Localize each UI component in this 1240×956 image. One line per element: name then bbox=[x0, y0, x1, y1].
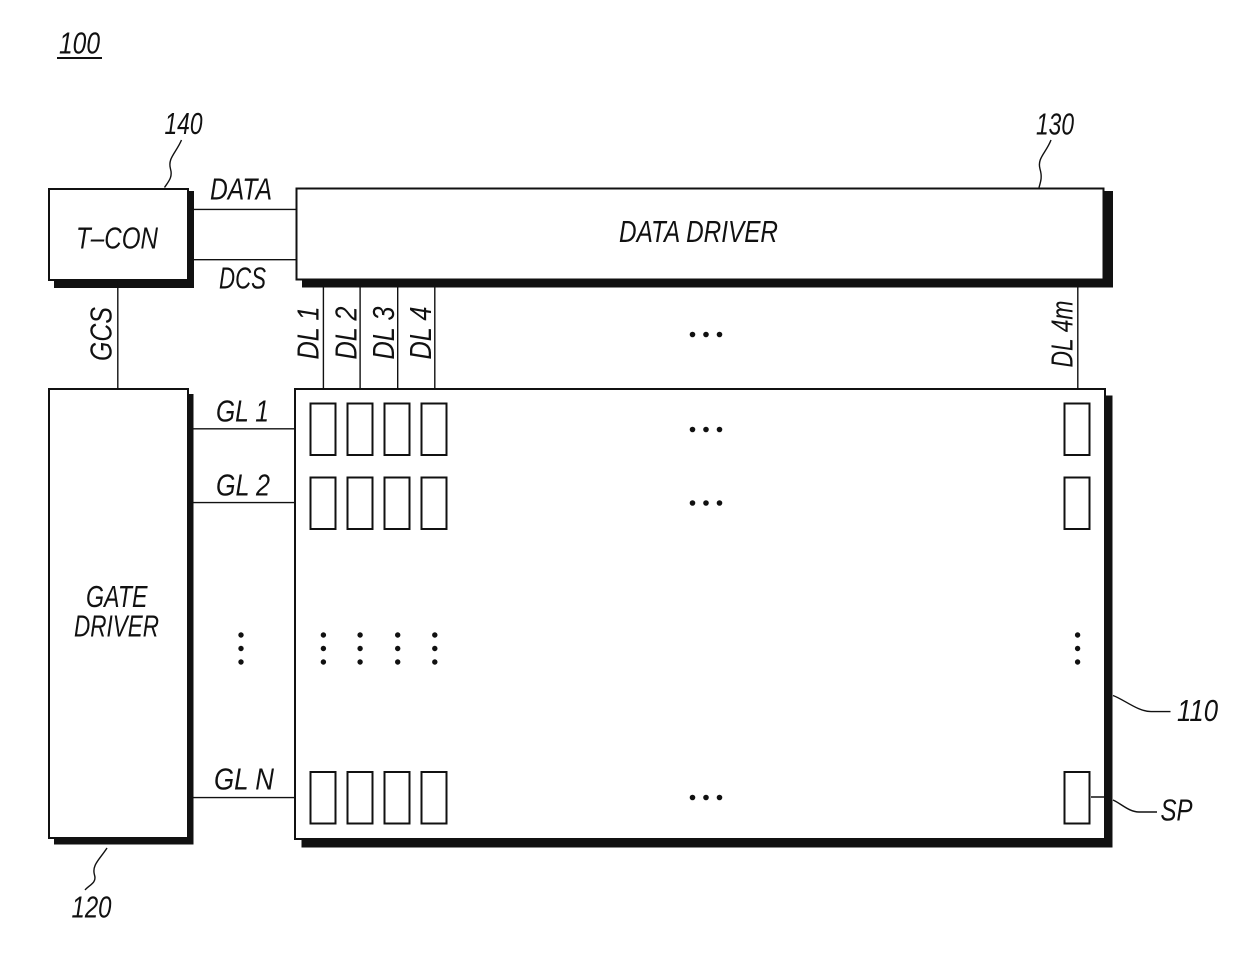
svg-text:110: 110 bbox=[1177, 693, 1218, 728]
svg-text:DATA DRIVER: DATA DRIVER bbox=[619, 214, 778, 249]
svg-text:DL 2: DL 2 bbox=[329, 307, 364, 360]
svg-text:T–CON: T–CON bbox=[76, 221, 158, 256]
svg-text:130: 130 bbox=[1036, 107, 1074, 142]
svg-text:DCS: DCS bbox=[219, 261, 266, 296]
svg-text:DL 3: DL 3 bbox=[366, 307, 401, 360]
svg-text:GL N: GL N bbox=[214, 762, 275, 797]
svg-text:120: 120 bbox=[72, 890, 112, 925]
svg-text:100: 100 bbox=[59, 26, 100, 61]
svg-text:DATA: DATA bbox=[210, 172, 272, 207]
svg-text:SP: SP bbox=[1161, 793, 1193, 828]
svg-text:GCS: GCS bbox=[84, 307, 119, 361]
svg-text:DL 4: DL 4 bbox=[403, 307, 438, 360]
svg-text:DL 1: DL 1 bbox=[291, 307, 326, 360]
svg-text:DRIVER: DRIVER bbox=[74, 609, 159, 644]
svg-text:GL 2: GL 2 bbox=[216, 468, 270, 503]
svg-text:140: 140 bbox=[165, 106, 203, 141]
svg-text:GL 1: GL 1 bbox=[216, 394, 269, 429]
svg-text:DL 4m: DL 4m bbox=[1045, 301, 1080, 368]
